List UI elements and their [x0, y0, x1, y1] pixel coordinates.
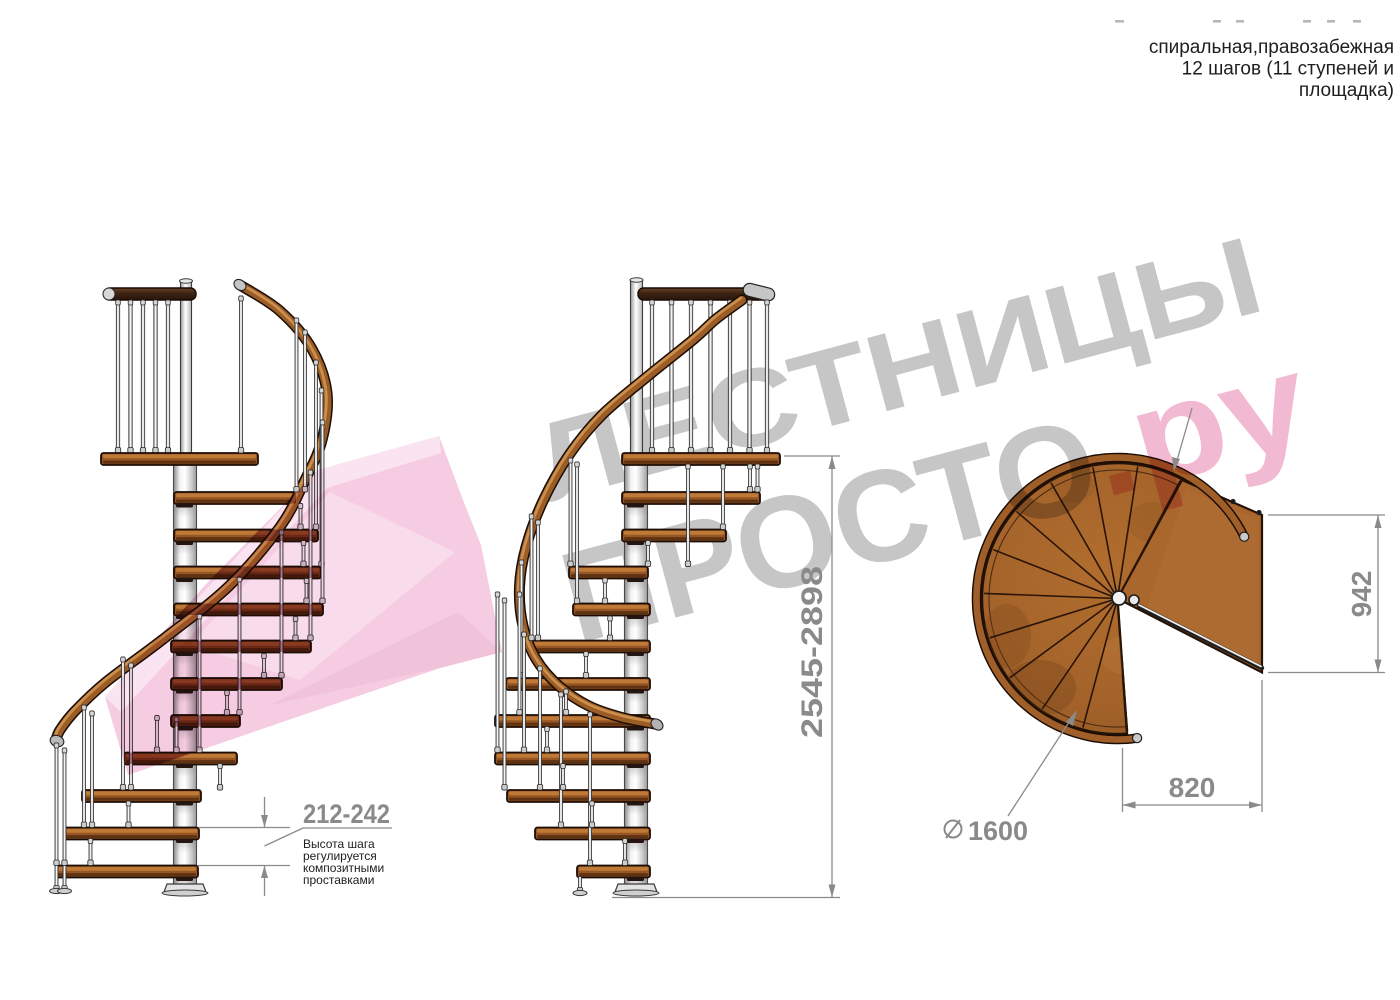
svg-text:820: 820	[1169, 772, 1216, 803]
svg-text:площадка): площадка)	[1299, 80, 1394, 101]
svg-text:212-242: 212-242	[303, 799, 390, 829]
svg-text:спиральная,правозабежная: спиральная,правозабежная	[1149, 37, 1394, 58]
svg-text:1600: 1600	[968, 816, 1028, 846]
svg-text:проставками: проставками	[303, 873, 374, 887]
svg-text:942: 942	[1346, 571, 1377, 618]
svg-text:12 шагов (11 ступеней и: 12 шагов (11 ступеней и	[1182, 59, 1394, 80]
svg-text:2545-2898: 2545-2898	[796, 566, 829, 738]
